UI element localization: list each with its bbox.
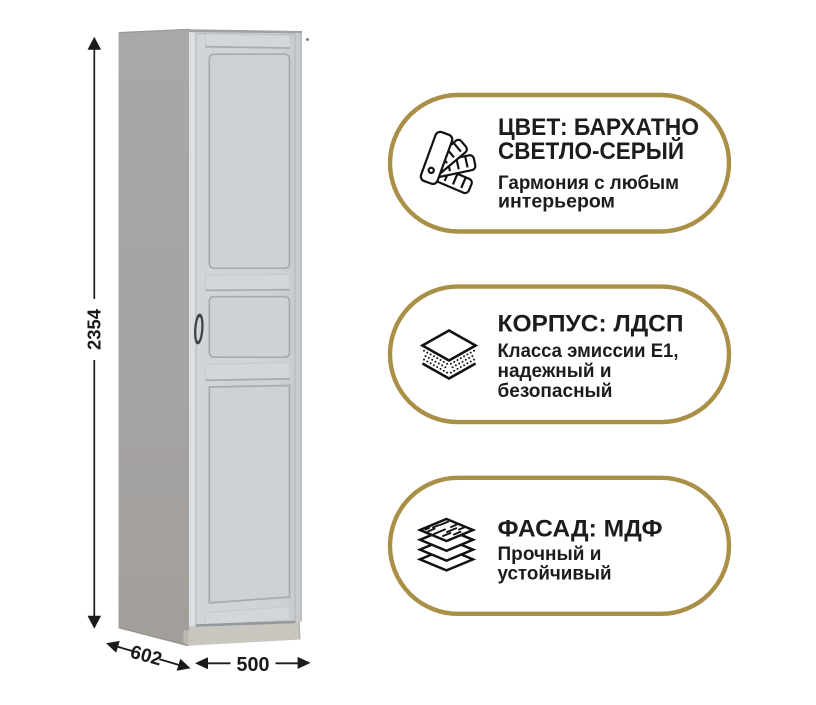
svg-text:ФАСАД: МДФ: ФАСАД: МДФ xyxy=(498,515,663,542)
svg-text:безопасный: безопасный xyxy=(498,381,613,402)
svg-text:надежный и: надежный и xyxy=(498,361,612,382)
svg-text:Прочный и: Прочный и xyxy=(498,544,602,565)
svg-text:СВЕТЛО-СЕРЫЙ: СВЕТЛО-СЕРЫЙ xyxy=(498,137,684,165)
svg-text:Класса эмиссии Е1,: Класса эмиссии Е1, xyxy=(498,341,679,362)
svg-text:500: 500 xyxy=(237,654,270,676)
svg-text:интерьером: интерьером xyxy=(498,191,615,212)
svg-text:602: 602 xyxy=(128,642,164,671)
svg-text:КОРПУС: ЛДСП: КОРПУС: ЛДСП xyxy=(498,310,684,337)
svg-text:2354: 2354 xyxy=(85,309,105,350)
svg-text:устойчивый: устойчивый xyxy=(498,564,612,585)
